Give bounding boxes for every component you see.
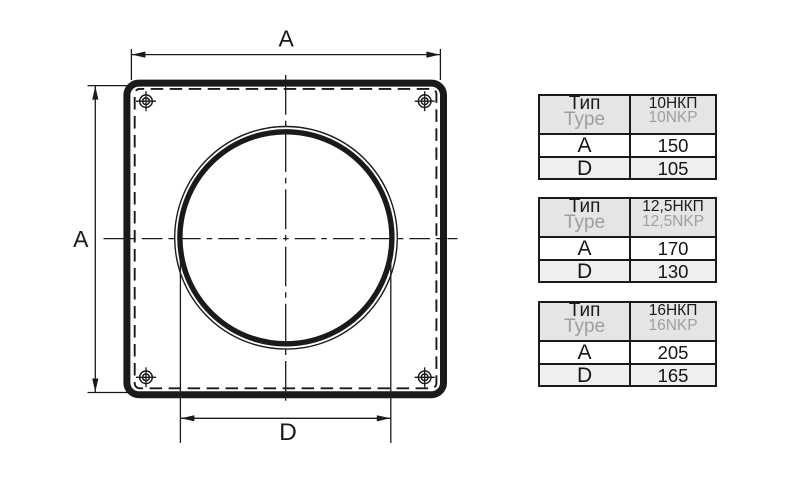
svg-text:D: D (279, 419, 297, 446)
svg-text:A: A (279, 26, 295, 52)
svg-text:A: A (73, 226, 89, 252)
